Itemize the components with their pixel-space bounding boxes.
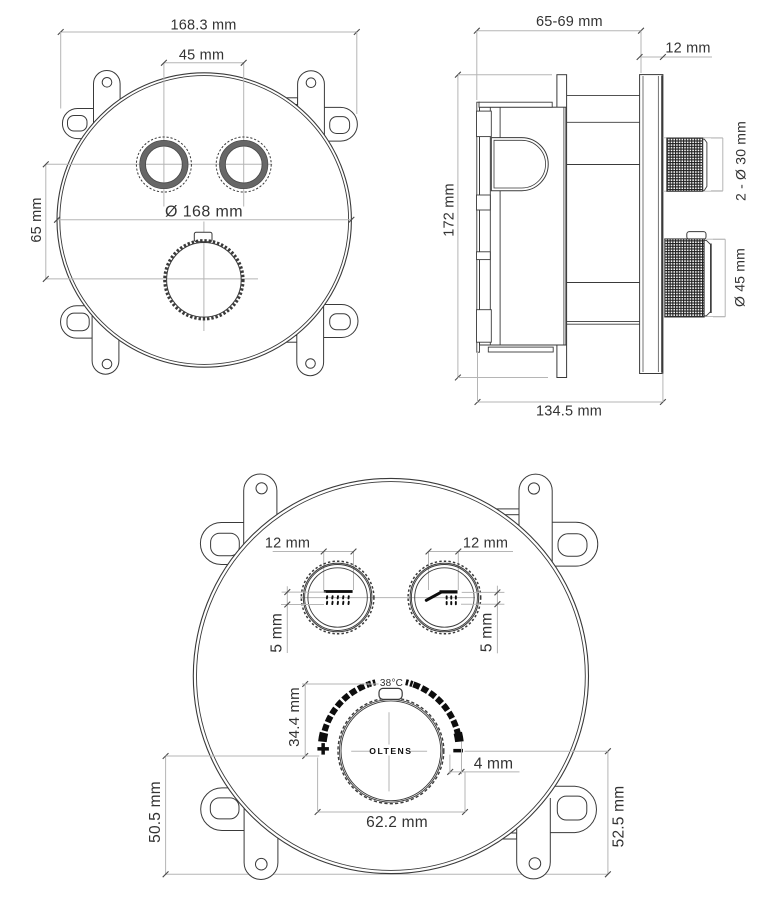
svg-text:38°C: 38°C [380, 678, 403, 689]
svg-text:45 mm: 45 mm [179, 47, 224, 63]
svg-text:62.2 mm: 62.2 mm [366, 814, 428, 831]
svg-text:172 mm: 172 mm [442, 183, 458, 237]
svg-text:Ø 168 mm: Ø 168 mm [165, 204, 243, 221]
svg-text:134.5 mm: 134.5 mm [536, 404, 602, 420]
svg-text:4 mm: 4 mm [474, 755, 514, 772]
svg-text:65 mm: 65 mm [29, 197, 45, 242]
svg-text:50.5 mm: 50.5 mm [147, 781, 164, 843]
svg-text:65-69 mm: 65-69 mm [536, 14, 603, 30]
svg-text:12 mm: 12 mm [463, 536, 508, 552]
svg-text:5 mm: 5 mm [269, 613, 286, 653]
svg-text:52.5 mm: 52.5 mm [611, 786, 628, 848]
svg-text:12 mm: 12 mm [265, 536, 310, 552]
svg-text:OLTENS: OLTENS [369, 746, 412, 756]
svg-text:5 mm: 5 mm [479, 613, 496, 653]
svg-text:168.3 mm: 168.3 mm [170, 18, 236, 34]
svg-text:Ø 45 mm: Ø 45 mm [732, 248, 748, 307]
svg-text:34.4 mm: 34.4 mm [286, 687, 303, 747]
svg-text:2 - Ø 30 mm: 2 - Ø 30 mm [733, 121, 749, 201]
svg-text:12 mm: 12 mm [665, 41, 710, 57]
